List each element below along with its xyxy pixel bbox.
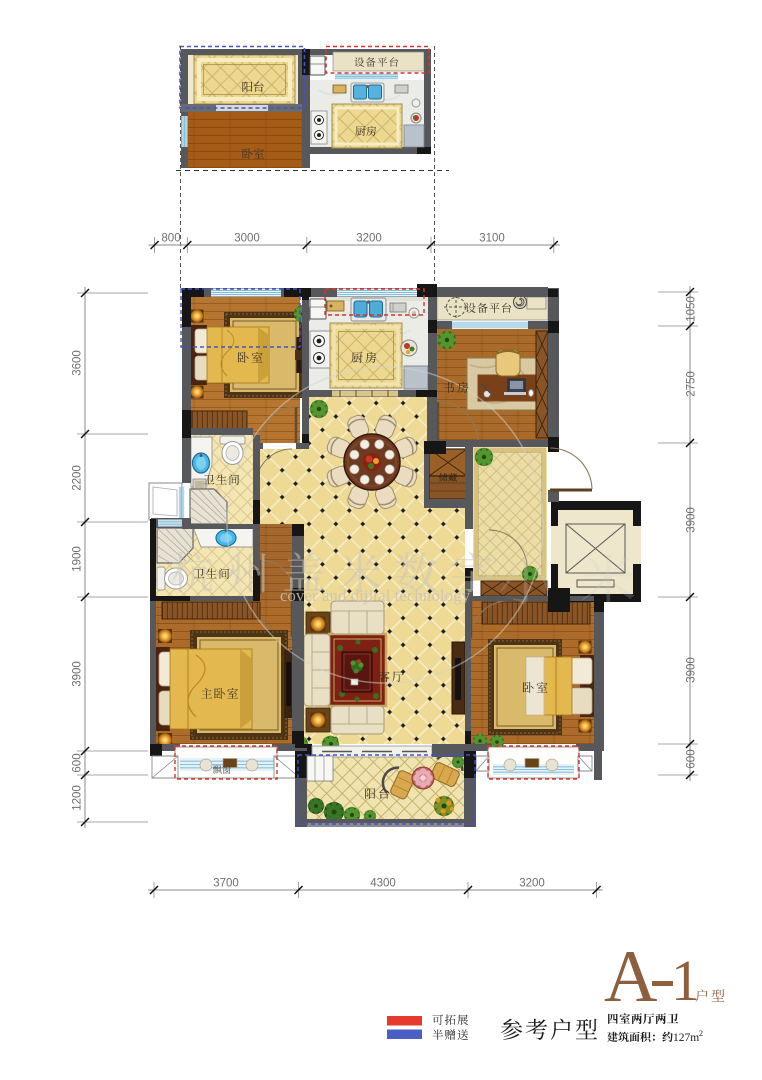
svg-text:A: A (604, 936, 657, 1018)
svg-text:3900: 3900 (686, 657, 698, 683)
svg-text:cover and dijital technology: cover and dijital technology (280, 586, 471, 605)
svg-text:4300: 4300 (370, 878, 396, 890)
svg-text:600: 600 (686, 749, 698, 768)
svg-text:1200: 1200 (72, 785, 84, 811)
svg-text:1900: 1900 (72, 546, 84, 572)
svg-text:3200: 3200 (356, 233, 382, 245)
svg-text:2: 2 (699, 1029, 703, 1038)
svg-text:2750: 2750 (686, 371, 698, 397)
svg-text:2200: 2200 (72, 465, 84, 491)
svg-text:3900: 3900 (72, 661, 84, 687)
svg-text:1050: 1050 (686, 296, 698, 322)
svg-text:600: 600 (72, 753, 84, 772)
svg-text:800: 800 (161, 233, 180, 245)
svg-text:127m: 127m (673, 1032, 699, 1044)
svg-text:1: 1 (671, 948, 700, 1013)
svg-text:3000: 3000 (234, 233, 260, 245)
svg-text:3200: 3200 (519, 878, 545, 890)
svg-text:3600: 3600 (72, 350, 84, 376)
svg-text:3900: 3900 (686, 507, 698, 533)
svg-text:3700: 3700 (213, 878, 239, 890)
svg-text:3100: 3100 (479, 233, 505, 245)
